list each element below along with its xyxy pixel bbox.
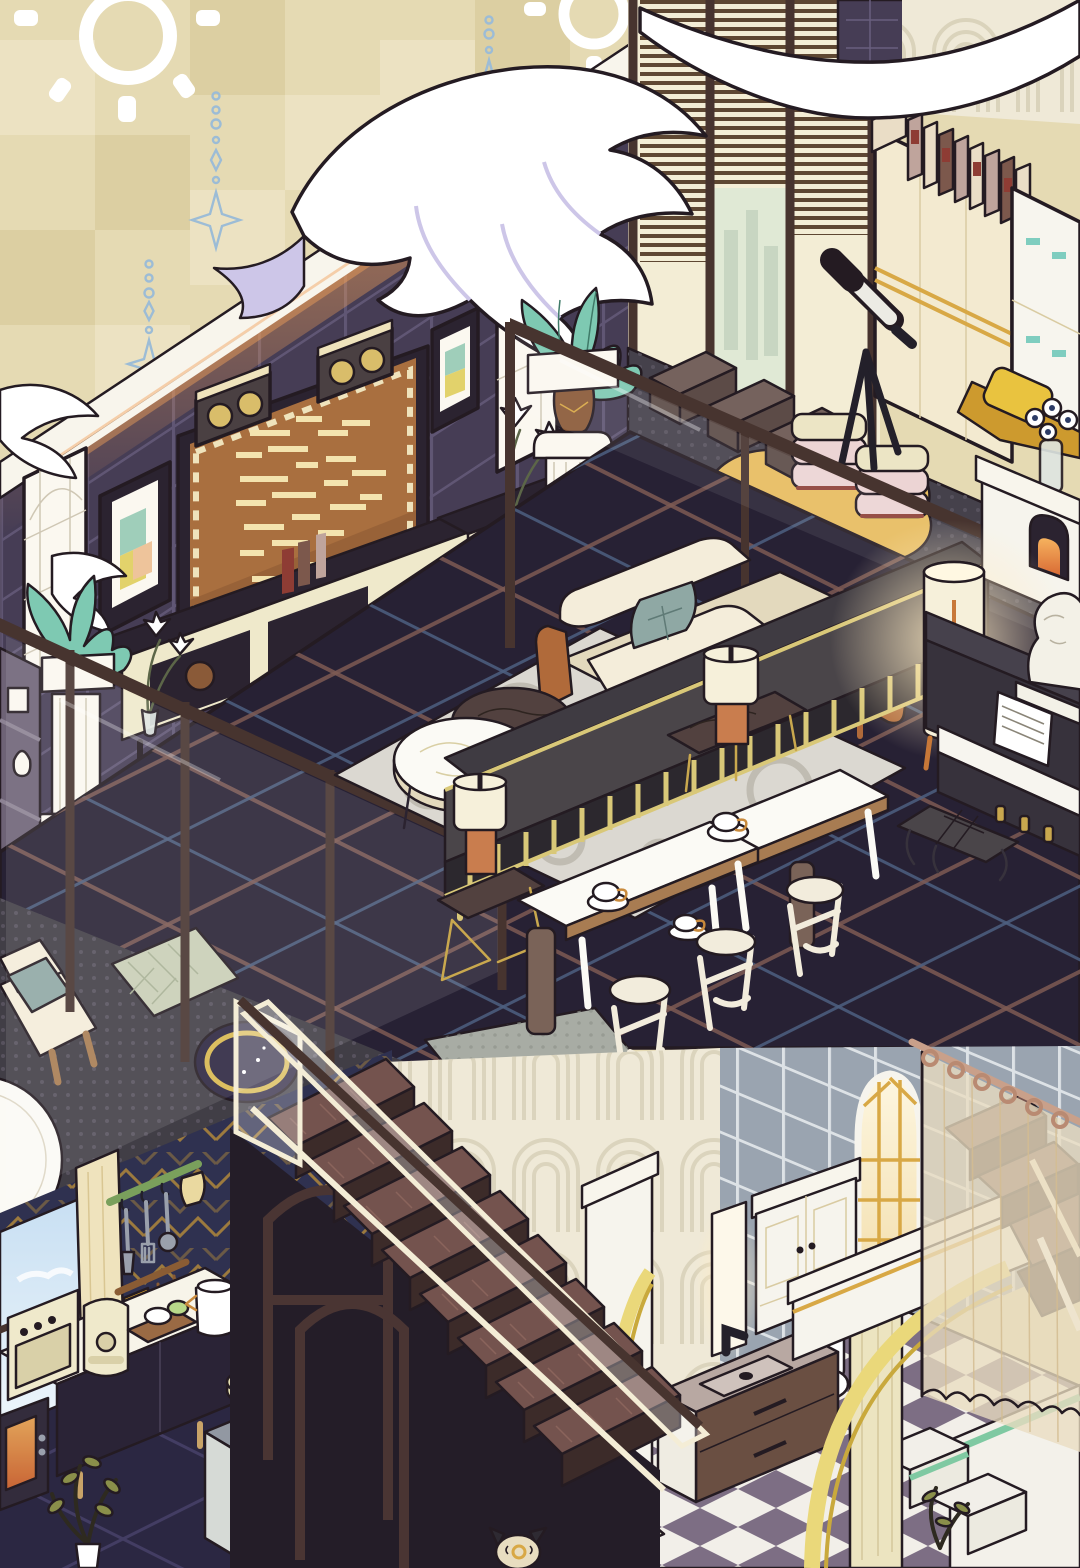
art-frame[interactable]	[432, 308, 478, 432]
scene-canvas	[0, 0, 1080, 1568]
oven-mitt	[181, 1172, 205, 1206]
microwave[interactable]	[0, 1398, 48, 1510]
game-screenshot	[0, 0, 1080, 1568]
air-fryer[interactable]	[84, 1299, 128, 1376]
